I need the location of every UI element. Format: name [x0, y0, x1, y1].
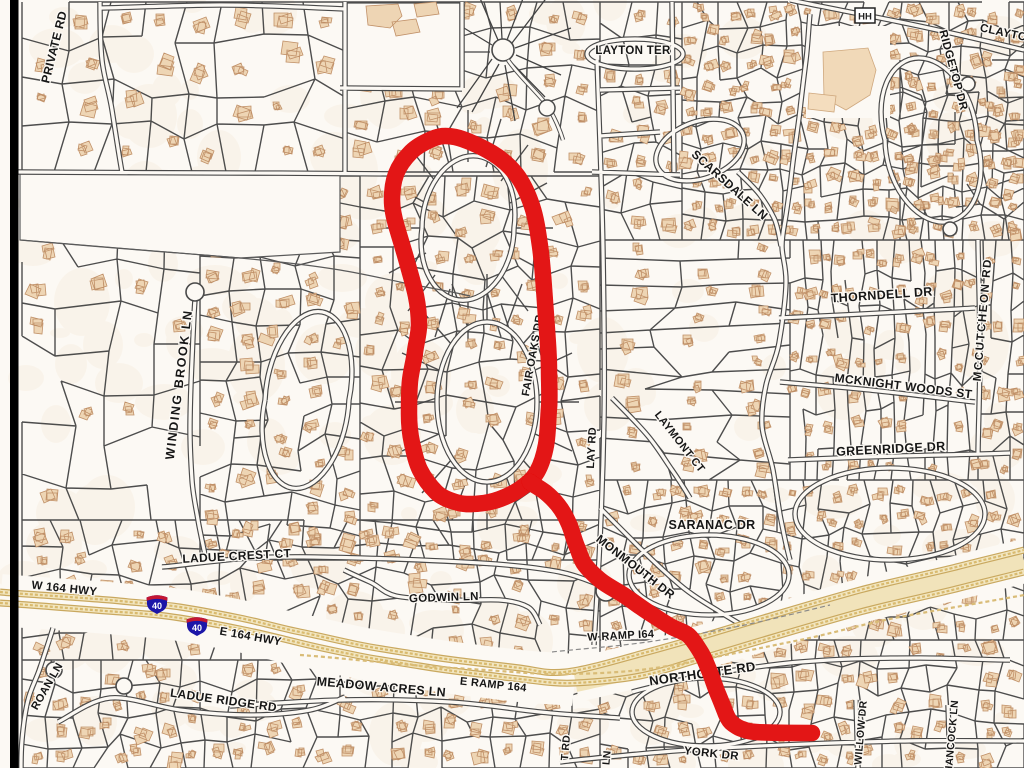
svg-text:40: 40: [192, 623, 202, 633]
svg-text:LAYTON TER: LAYTON TER: [595, 45, 671, 57]
svg-text:HH: HH: [858, 12, 872, 23]
svg-text:GODWIN LN: GODWIN LN: [409, 591, 479, 605]
svg-text:LN: LN: [600, 750, 613, 766]
svg-text:SARANAC DR: SARANAC DR: [668, 518, 755, 532]
svg-text:40: 40: [152, 601, 162, 611]
svg-text:LAY RD: LAY RD: [585, 427, 599, 469]
svg-text:T RD: T RD: [559, 734, 573, 761]
